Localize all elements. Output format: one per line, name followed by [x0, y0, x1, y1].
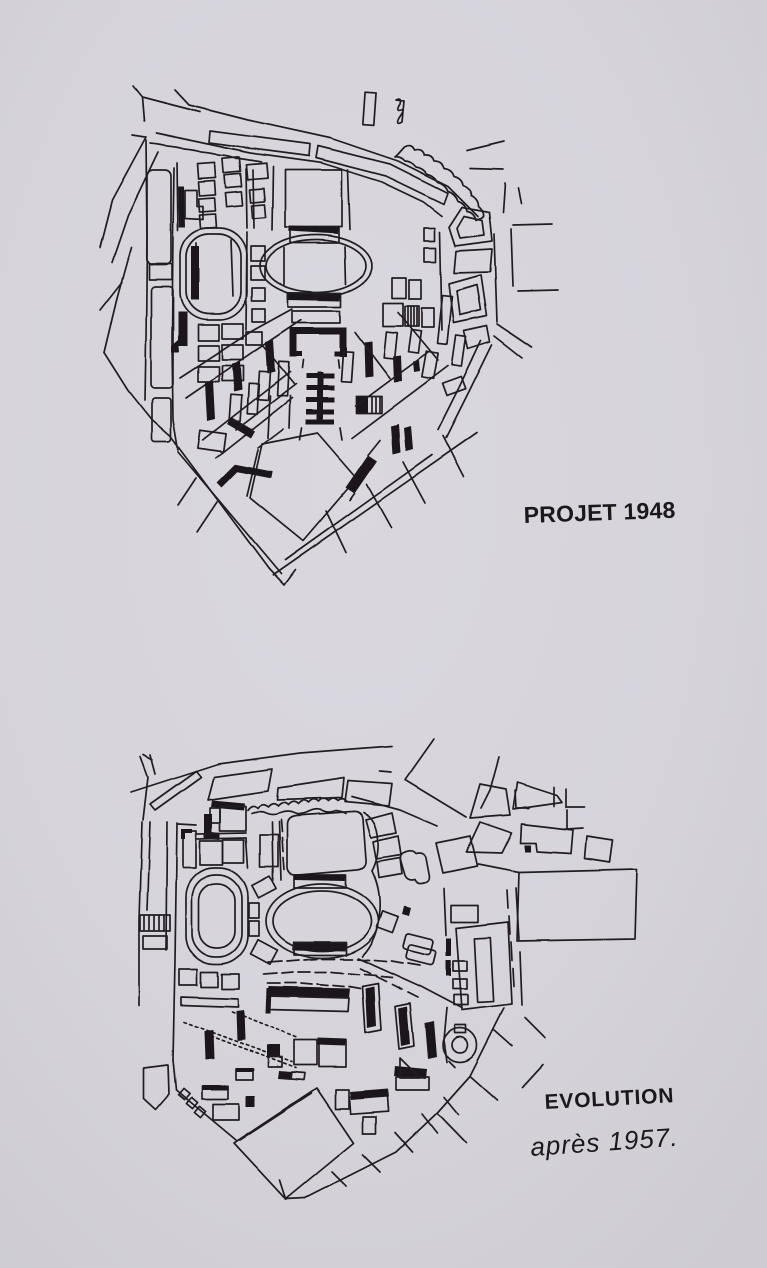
svg-text:PROJET 1948: PROJET 1948 [523, 497, 676, 528]
